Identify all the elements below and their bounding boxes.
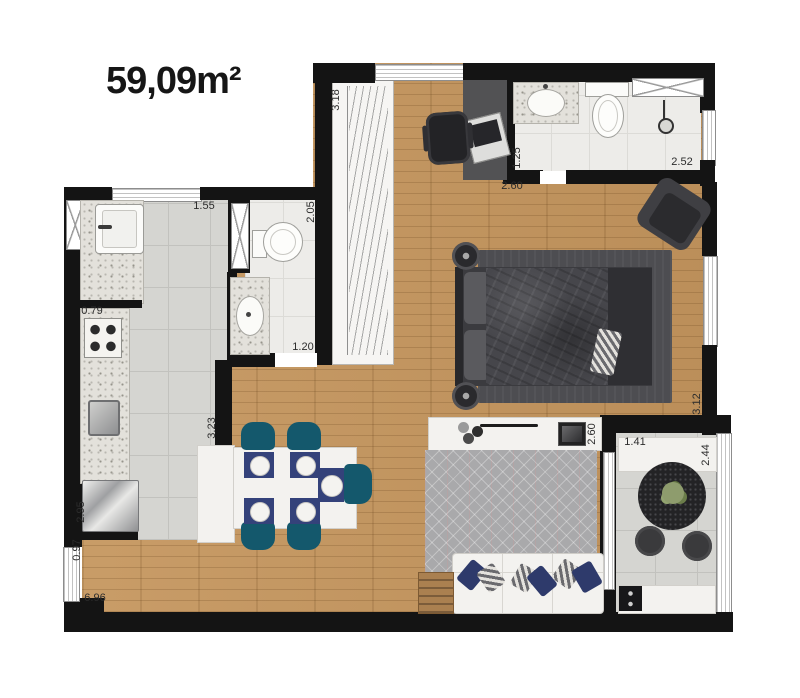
dining-chair-4 bbox=[287, 522, 321, 550]
bedroom-door-gap bbox=[540, 171, 568, 184]
console-decor-2 bbox=[472, 426, 483, 437]
console-decor-1 bbox=[458, 422, 469, 433]
suite-faucet bbox=[543, 84, 548, 89]
grill bbox=[619, 586, 642, 611]
stove bbox=[84, 318, 122, 358]
dining-chair-1 bbox=[241, 422, 275, 450]
tv bbox=[558, 422, 586, 446]
wall-under-bath-a bbox=[503, 170, 543, 184]
shower-head bbox=[658, 118, 674, 134]
shower-head-stem bbox=[663, 100, 665, 120]
plate-1 bbox=[250, 456, 270, 476]
tv-screen bbox=[562, 426, 582, 442]
wall-bathroom-bottom bbox=[227, 353, 275, 367]
balcony-pouf-2 bbox=[682, 531, 712, 561]
shaft-vent bbox=[231, 203, 249, 269]
wall-dining-column bbox=[215, 360, 232, 447]
wall-under-bath-b bbox=[566, 170, 713, 184]
console-decor-3 bbox=[463, 433, 474, 444]
bedroom-window bbox=[703, 256, 718, 347]
kitchen-sink bbox=[95, 204, 144, 254]
suite-toilet-bowl-inner bbox=[598, 100, 618, 132]
kitchen-counter-divider bbox=[80, 300, 142, 308]
mask-bottom bbox=[0, 630, 800, 698]
balcony-sliding-door bbox=[603, 452, 615, 590]
kitchen-sink-basin bbox=[102, 210, 137, 248]
floor-plan: 59,09m² 1.552.053.182.601.252.520.791.20… bbox=[0, 0, 800, 698]
wall-kitchen-top-a bbox=[64, 187, 112, 200]
suite-sink bbox=[527, 89, 565, 117]
closet-hangers bbox=[349, 86, 389, 356]
wall-bathroom-top bbox=[250, 187, 320, 200]
suite-toilet-bowl bbox=[592, 94, 624, 138]
soundbar bbox=[480, 424, 538, 427]
living-window-left bbox=[63, 547, 80, 602]
area-title: 59,09m² bbox=[106, 60, 241, 103]
mask-left bbox=[0, 0, 64, 698]
shower-shelf bbox=[632, 78, 704, 97]
wall-balcony-top bbox=[600, 415, 731, 433]
bathroom-door-gap bbox=[275, 353, 317, 367]
plate-2 bbox=[296, 456, 316, 476]
kitchen-appliance bbox=[88, 400, 120, 436]
dining-chair-2 bbox=[287, 422, 321, 450]
bathroom-faucet bbox=[246, 312, 251, 317]
office-chair-arm-left bbox=[422, 125, 429, 151]
balcony-pouf-1 bbox=[635, 526, 665, 556]
nightstand-bottom bbox=[452, 382, 480, 410]
balcony-railing bbox=[716, 433, 732, 616]
nightstand-top bbox=[452, 242, 480, 270]
toilet-bowl-inner bbox=[270, 229, 296, 255]
bed-headboard bbox=[455, 267, 463, 386]
plate-3 bbox=[250, 502, 270, 522]
plate-5 bbox=[321, 475, 343, 497]
toilet-bowl bbox=[263, 222, 303, 262]
kitchen-island-counter bbox=[197, 445, 235, 543]
window-top bbox=[375, 64, 465, 81]
plate-4 bbox=[296, 502, 316, 522]
balcony-plant bbox=[662, 482, 684, 504]
wall-balcony-bottom bbox=[600, 612, 733, 632]
kitchen-faucet bbox=[98, 225, 112, 229]
shower-window bbox=[702, 110, 716, 166]
fridge bbox=[82, 480, 139, 532]
wood-side-table bbox=[418, 572, 454, 614]
office-chair bbox=[425, 111, 471, 166]
closet bbox=[332, 76, 394, 365]
wall-bottom bbox=[64, 612, 604, 632]
dining-chair-3 bbox=[241, 522, 275, 550]
laptop-keyboard bbox=[470, 119, 502, 147]
wall-closet-left bbox=[315, 63, 332, 365]
dining-chair-5 bbox=[344, 464, 372, 504]
